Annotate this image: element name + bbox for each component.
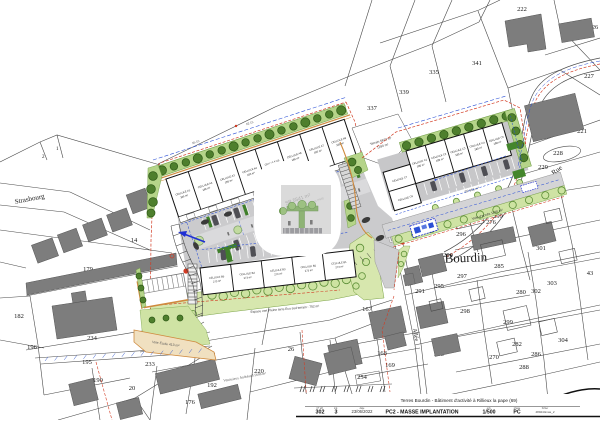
svg-text:182: 182 [14,313,24,320]
svg-text:276: 276 [486,219,497,226]
svg-text:295: 295 [434,283,444,290]
svg-text:23/06/2022: 23/06/2022 [352,409,374,414]
svg-text:26: 26 [288,346,295,353]
svg-text:298: 298 [460,308,470,315]
svg-text:176: 176 [185,399,196,406]
svg-text:285: 285 [494,263,504,270]
svg-text:302: 302 [531,288,541,295]
svg-text:291: 291 [415,288,425,295]
svg-text:228: 228 [553,150,563,157]
svg-text:PC2 - MASSE IMPLANTATION: PC2 - MASSE IMPLANTATION [385,410,458,416]
svg-text:195: 195 [82,359,92,366]
svg-text:Bourdin: Bourdin [444,249,488,265]
svg-text:299: 299 [503,319,513,326]
svg-text:3: 3 [335,410,338,416]
svg-text:196: 196 [27,344,38,351]
svg-text:282: 282 [512,341,522,348]
svg-text:Terres Bourdin - Bâtiment d'ac: Terres Bourdin - Bâtiment d'activité à R… [401,398,518,403]
svg-text:1/500: 1/500 [483,410,496,416]
svg-text:296: 296 [456,231,467,238]
svg-text:297: 297 [457,273,468,280]
svg-text:234: 234 [87,335,98,342]
svg-text:254: 254 [357,374,368,381]
svg-text:286: 286 [531,351,542,358]
svg-text:337: 337 [367,105,378,112]
svg-text:280: 280 [516,289,526,296]
svg-text:489244mas_2: 489244mas_2 [535,410,554,414]
svg-text:270: 270 [489,354,499,361]
svg-text:302: 302 [316,410,325,416]
svg-text:303: 303 [547,280,557,287]
svg-text:229: 229 [538,164,548,171]
svg-text:335: 335 [429,69,439,76]
svg-text:339: 339 [399,89,409,96]
svg-text:233: 233 [145,361,155,368]
svg-text:288: 288 [519,364,529,371]
svg-text:43: 43 [587,270,594,277]
svg-text:14: 14 [131,237,138,244]
svg-text:222: 222 [517,6,527,13]
svg-text:PC: PC [513,410,520,416]
svg-text:301: 301 [536,245,546,252]
svg-text:20: 20 [129,385,136,392]
svg-text:341: 341 [472,60,482,67]
svg-text:304: 304 [558,337,569,344]
svg-text:227: 227 [584,73,595,80]
svg-text:192: 192 [207,382,217,389]
